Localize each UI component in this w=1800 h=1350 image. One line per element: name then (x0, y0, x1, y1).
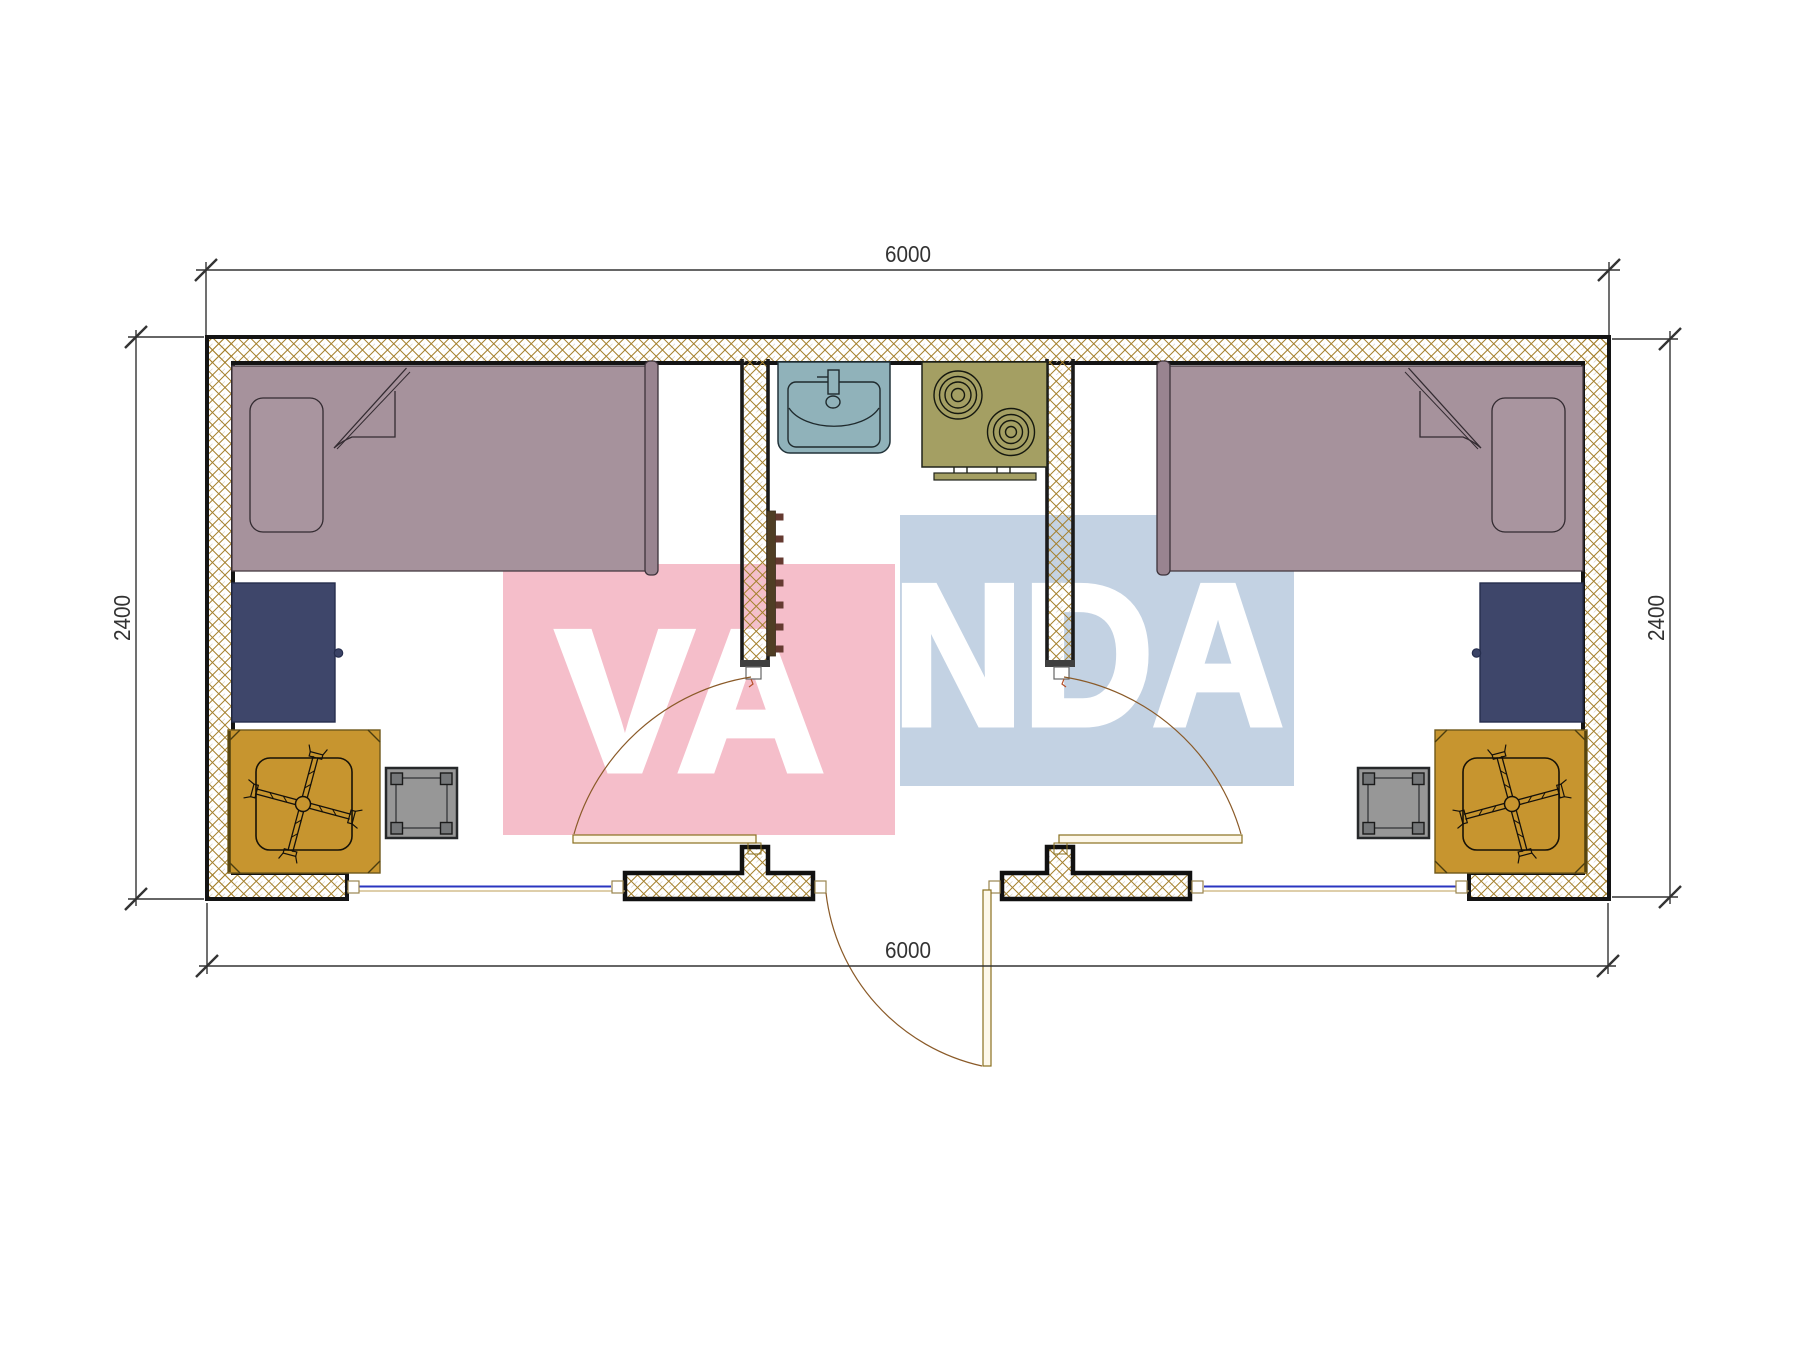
svg-text:6000: 6000 (885, 241, 931, 267)
svg-text:NDA: NDA (893, 544, 1283, 767)
svg-text:2400: 2400 (1643, 595, 1669, 641)
svg-text:6000: 6000 (885, 937, 931, 963)
svg-text:2400: 2400 (109, 595, 135, 641)
